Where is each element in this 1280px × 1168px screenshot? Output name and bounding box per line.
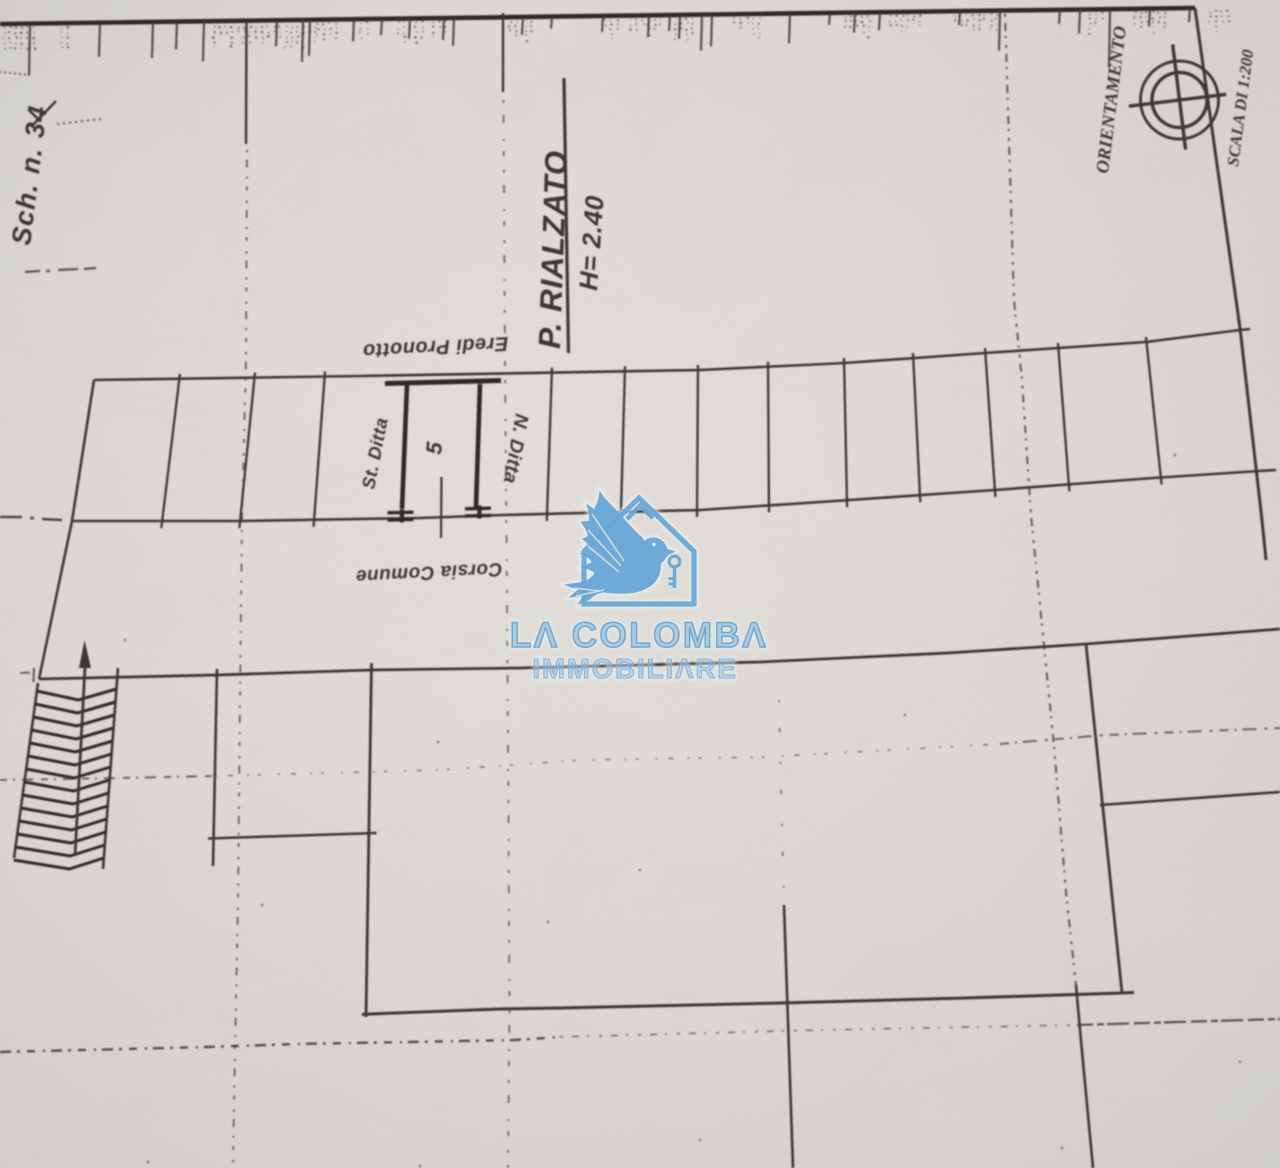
svg-text:5: 5 <box>421 440 447 456</box>
svg-text:LΛ COLOMBΛ: LΛ COLOMBΛ <box>510 616 768 655</box>
svg-text:IMMOBILIΛRE: IMMOBILIΛRE <box>532 653 737 684</box>
